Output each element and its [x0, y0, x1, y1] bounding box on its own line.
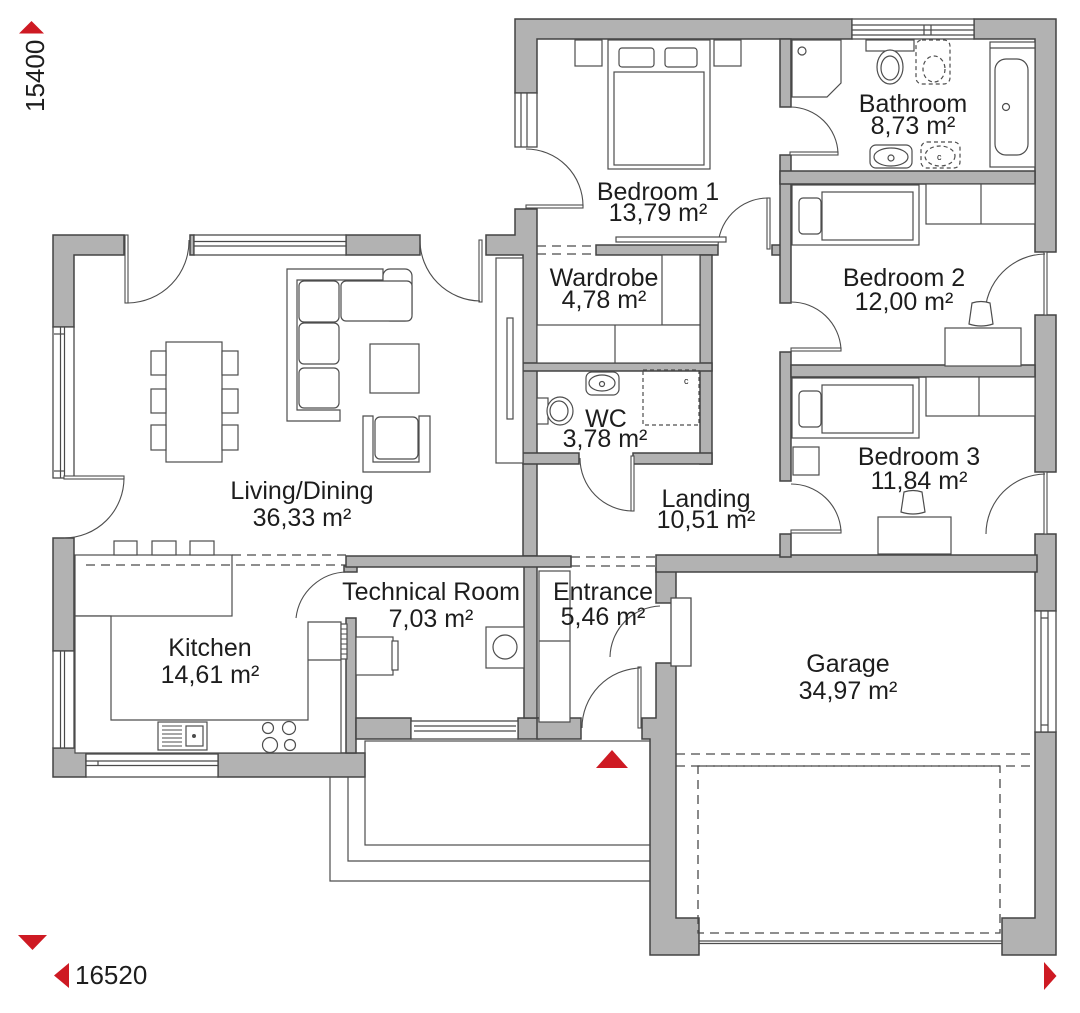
- svg-text:7,03 m²: 7,03 m²: [389, 605, 474, 633]
- svg-text:Entrance: Entrance: [553, 578, 653, 606]
- svg-text:36,33 m²: 36,33 m²: [253, 504, 352, 532]
- svg-text:c: c: [937, 152, 942, 162]
- svg-text:Living/Dining: Living/Dining: [230, 477, 373, 505]
- svg-text:Technical Room: Technical Room: [342, 578, 520, 606]
- svg-text:13,79 m²: 13,79 m²: [609, 199, 708, 227]
- svg-text:8,73 m²: 8,73 m²: [871, 112, 956, 140]
- svg-text:Garage: Garage: [806, 650, 889, 678]
- svg-text:15400: 15400: [20, 40, 50, 112]
- svg-text:11,84 m²: 11,84 m²: [871, 467, 968, 495]
- svg-text:34,97 m²: 34,97 m²: [799, 677, 898, 705]
- svg-text:3,78 m²: 3,78 m²: [563, 425, 648, 453]
- svg-text:16520: 16520: [75, 960, 147, 990]
- svg-text:14,61 m²: 14,61 m²: [161, 661, 260, 689]
- svg-text:c: c: [684, 376, 689, 386]
- svg-text:5,46 m²: 5,46 m²: [561, 603, 646, 631]
- svg-text:10,51 m²: 10,51 m²: [657, 506, 756, 534]
- svg-text:12,00 m²: 12,00 m²: [855, 288, 954, 316]
- svg-text:4,78 m²: 4,78 m²: [562, 286, 647, 314]
- svg-text:Kitchen: Kitchen: [168, 634, 251, 662]
